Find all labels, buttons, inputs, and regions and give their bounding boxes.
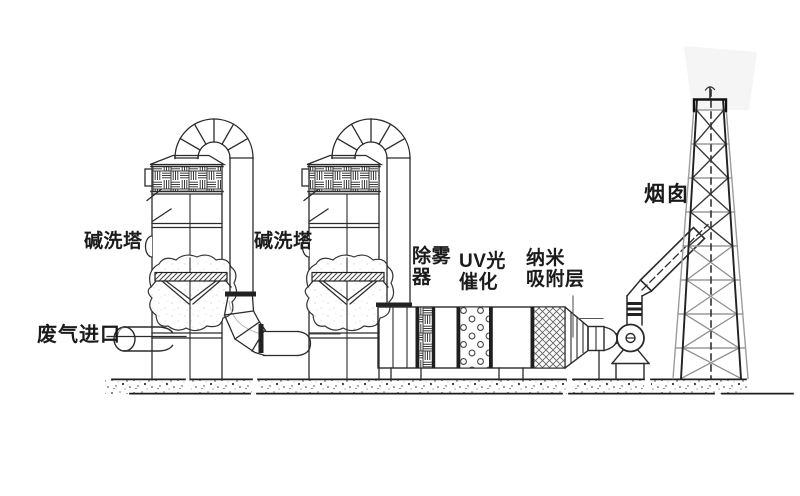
spray-assembly-1	[148, 255, 236, 330]
label-demister: 除雾 器	[412, 246, 451, 288]
label-nano-adsorption-layer: 纳米 吸附层	[526, 248, 585, 290]
fan	[612, 280, 652, 379]
demister-section	[419, 308, 432, 368]
label-chimney: 烟囱	[644, 184, 690, 205]
scrubber-tower-2	[302, 119, 412, 380]
packing-layer-1	[151, 167, 223, 195]
process-flow-diagram: 碱洗塔 碱洗塔 废气进口 除雾 器 UV光 催化 纳米 吸附层 烟囱	[0, 0, 800, 496]
fan-stand	[612, 349, 649, 379]
label-scrubber-tower-1: 碱洗塔	[84, 231, 143, 252]
nano-adsorption-section	[534, 308, 564, 368]
uv-photocatalysis-section	[460, 308, 489, 368]
label-uv-photocatalysis: UV光 催化	[459, 251, 506, 293]
stack-riser-duct	[641, 225, 709, 292]
scrubber-tower-1	[145, 119, 256, 380]
outlet-cone	[565, 307, 624, 368]
treatment-chamber	[378, 296, 624, 380]
label-scrubber-tower-2: 碱洗塔	[254, 231, 313, 252]
ground	[105, 379, 793, 395]
spray-cloud-1	[148, 255, 236, 330]
chimney-lattice-tower	[673, 87, 748, 379]
label-waste-gas-inlet: 废气进口	[37, 325, 121, 346]
packing-layer-2	[308, 167, 380, 195]
spray-assembly-2	[305, 255, 393, 330]
spray-cloud-2	[305, 255, 393, 330]
